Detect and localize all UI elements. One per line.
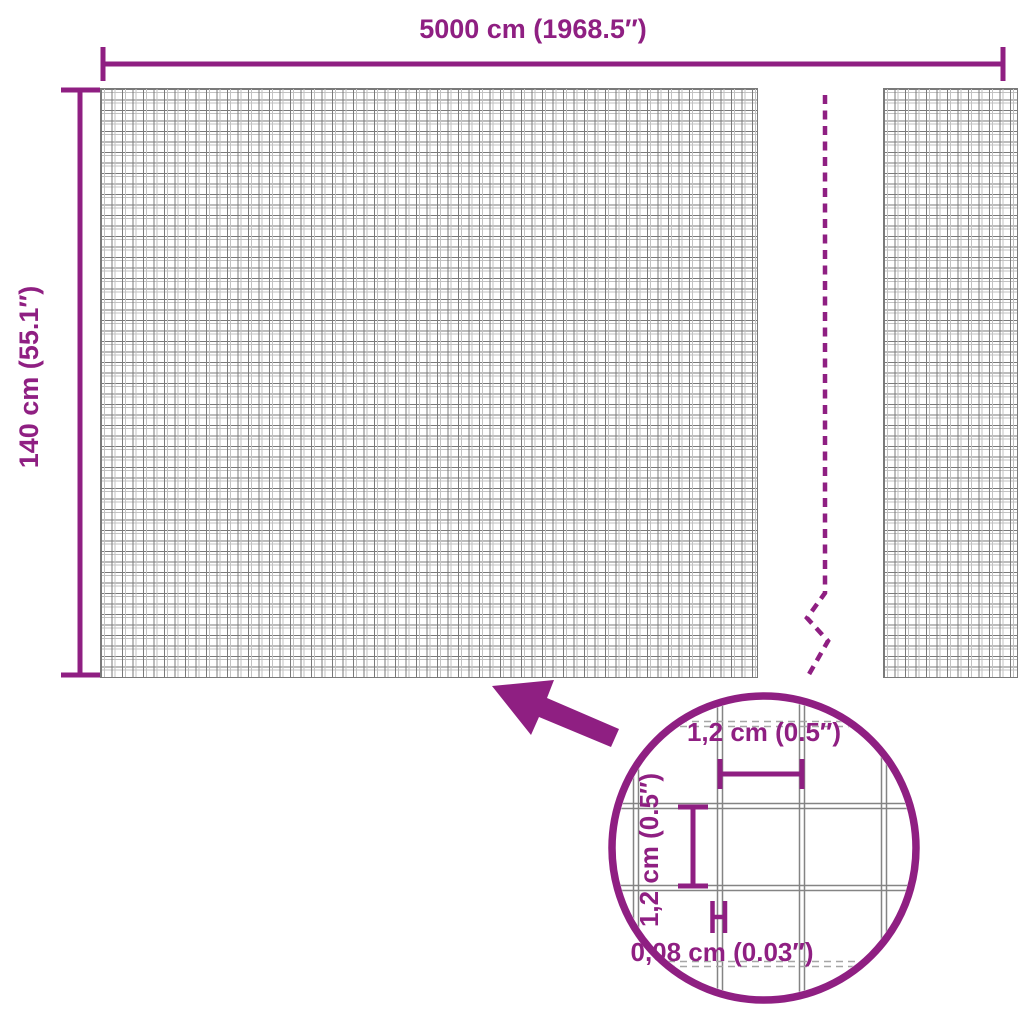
cell-width-label: 1,2 cm (0.5″) [687,717,841,747]
height-dimension-line [61,90,100,675]
dimension-overlay: 5000 cm (1968.5″) 140 cm (55.1″) [0,0,1024,1024]
wire-thickness-label: 0,08 cm (0.03″) [630,937,813,967]
product-dimension-diagram: 5000 cm (1968.5″) 140 cm (55.1″) [0,0,1024,1024]
width-dimension-label: 5000 cm (1968.5″) [419,14,647,44]
break-dashed-line [807,95,828,676]
detail-pointer-arrow-icon [492,680,619,747]
detail-circle: 1,2 cm (0.5″) 1,2 cm (0.5″) 0,08 cm (0.0… [608,690,920,1006]
height-dimension-label: 140 cm (55.1″) [14,286,44,469]
width-dimension-line [103,47,1003,81]
cell-height-label: 1,2 cm (0.5″) [634,773,664,927]
